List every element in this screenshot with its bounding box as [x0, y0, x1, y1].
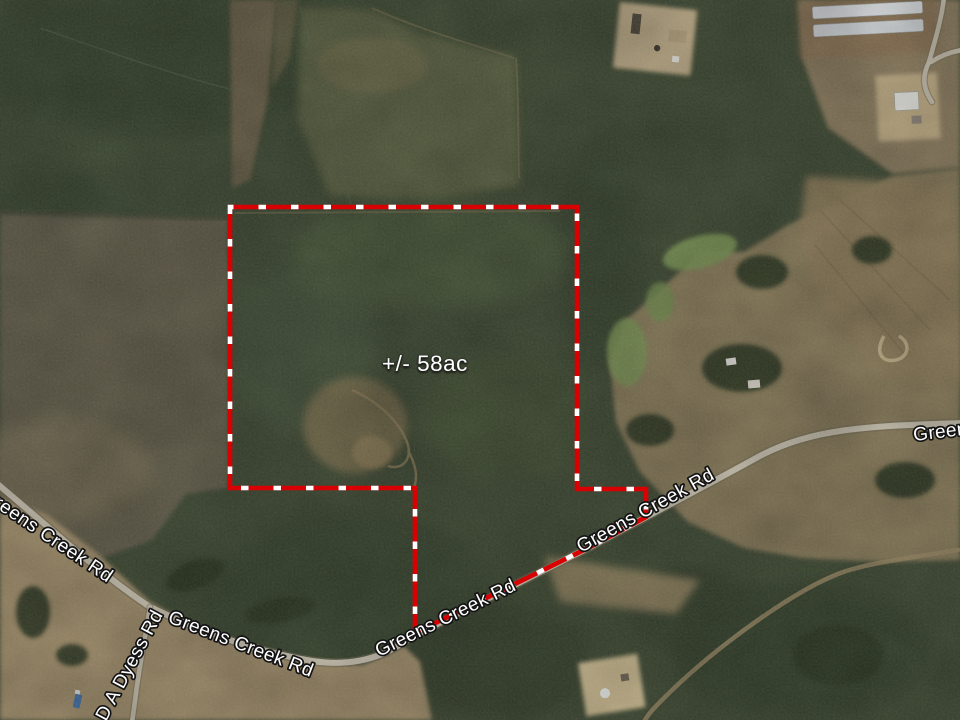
- map-canvas: Greens Creek Rd D A Dyess Rd Greens Cree…: [0, 0, 960, 720]
- satellite-map: Greens Creek Rd D A Dyess Rd Greens Cree…: [0, 0, 960, 720]
- acreage-label: +/- 58ac: [382, 351, 468, 376]
